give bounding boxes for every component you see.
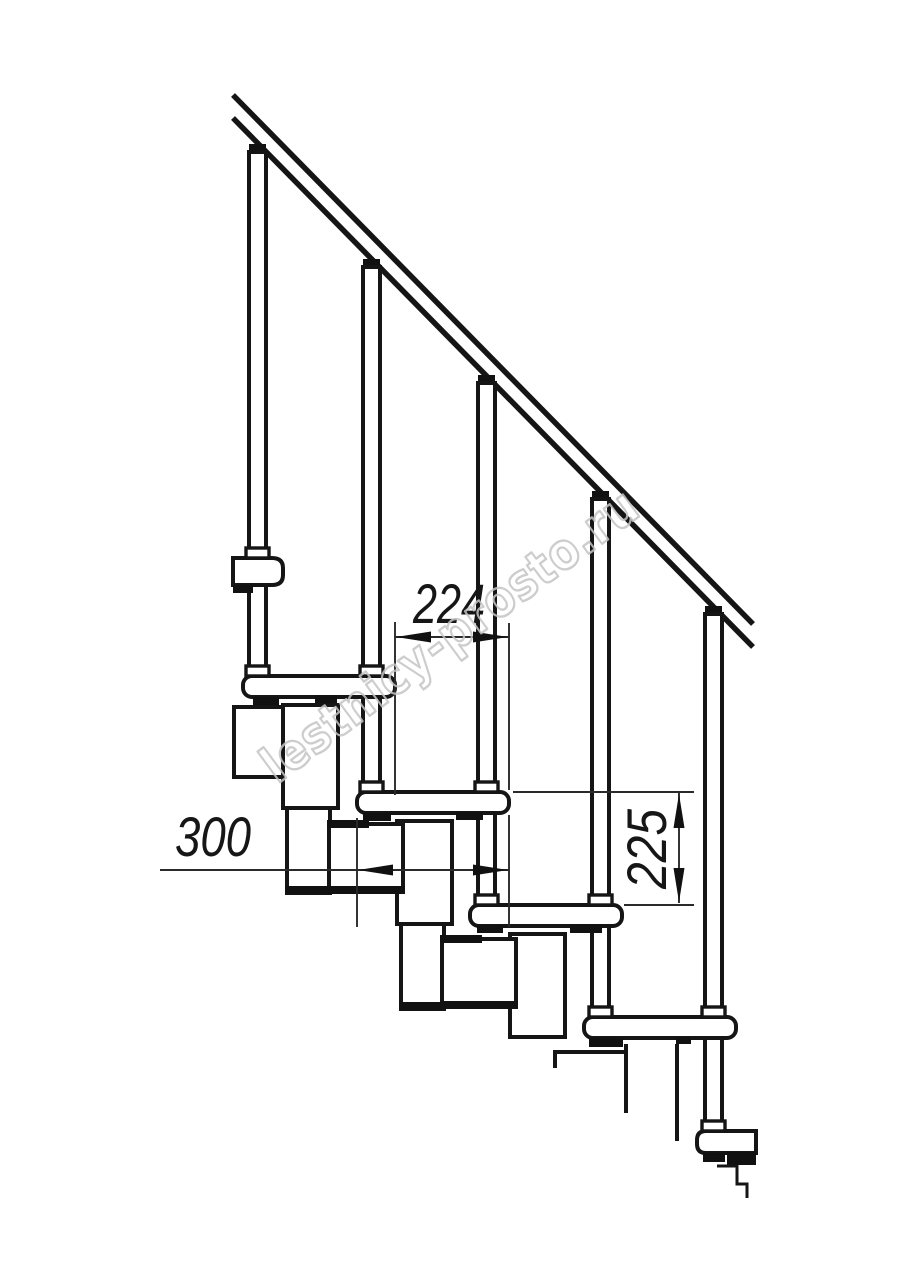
module-subneck-1 [287,808,330,893]
baluster-4 [592,499,609,1017]
module-subneck-2 [401,924,444,1009]
tread-3 [470,905,622,926]
module-body-3 [442,939,516,1006]
module-subneck-2-base [399,1002,446,1010]
tread-2-foot [456,812,483,820]
baluster-5 [705,614,722,1131]
collar [475,782,498,792]
tread-5-cut [697,1131,756,1153]
staircase-technical-drawing: 224 300 225 lestnicy-prosto.ru [0,0,914,1280]
tread-4-foot [589,1038,623,1047]
tread-4 [584,1017,736,1038]
module-body-4-cut [555,1052,627,1068]
module-neck-3 [510,934,565,1037]
tread-3-foot [477,925,503,933]
module-body-2-base [327,886,405,894]
module-body-3-base [440,1001,518,1009]
module-body-3-joint [440,935,482,943]
module-body-2-joint [327,820,369,828]
watermark: lestnicy-prosto.ru [250,477,650,794]
tread-3-foot [570,924,602,933]
collar [589,1007,612,1017]
upper-platform-bracket [233,558,283,585]
collar [360,782,383,792]
collar [702,1121,725,1131]
module-neck-2 [397,821,452,924]
collar [246,666,269,676]
tread-2 [357,792,509,813]
dim-tread-depth-label: 300 [175,805,251,868]
tread-2-foot [363,813,391,821]
tread-5-foot [727,1152,756,1165]
collar [702,1007,725,1017]
tread-5-foot [703,1153,725,1162]
collar [475,895,498,905]
drawing-break-line [717,1166,747,1198]
collar [246,548,269,558]
tread-1-foot [253,697,279,705]
baluster-1 [249,152,266,676]
module-body-2 [329,824,403,891]
dim-rise-label: 225 [615,808,678,890]
module-neck-4-cut [626,1044,677,1141]
tread-4-foot [676,1037,691,1044]
drawing-svg: 224 300 225 lestnicy-prosto.ru [0,0,914,1280]
bracket-edge-mark [233,585,253,593]
module-subneck-1-base [285,886,332,894]
collar [589,895,612,905]
